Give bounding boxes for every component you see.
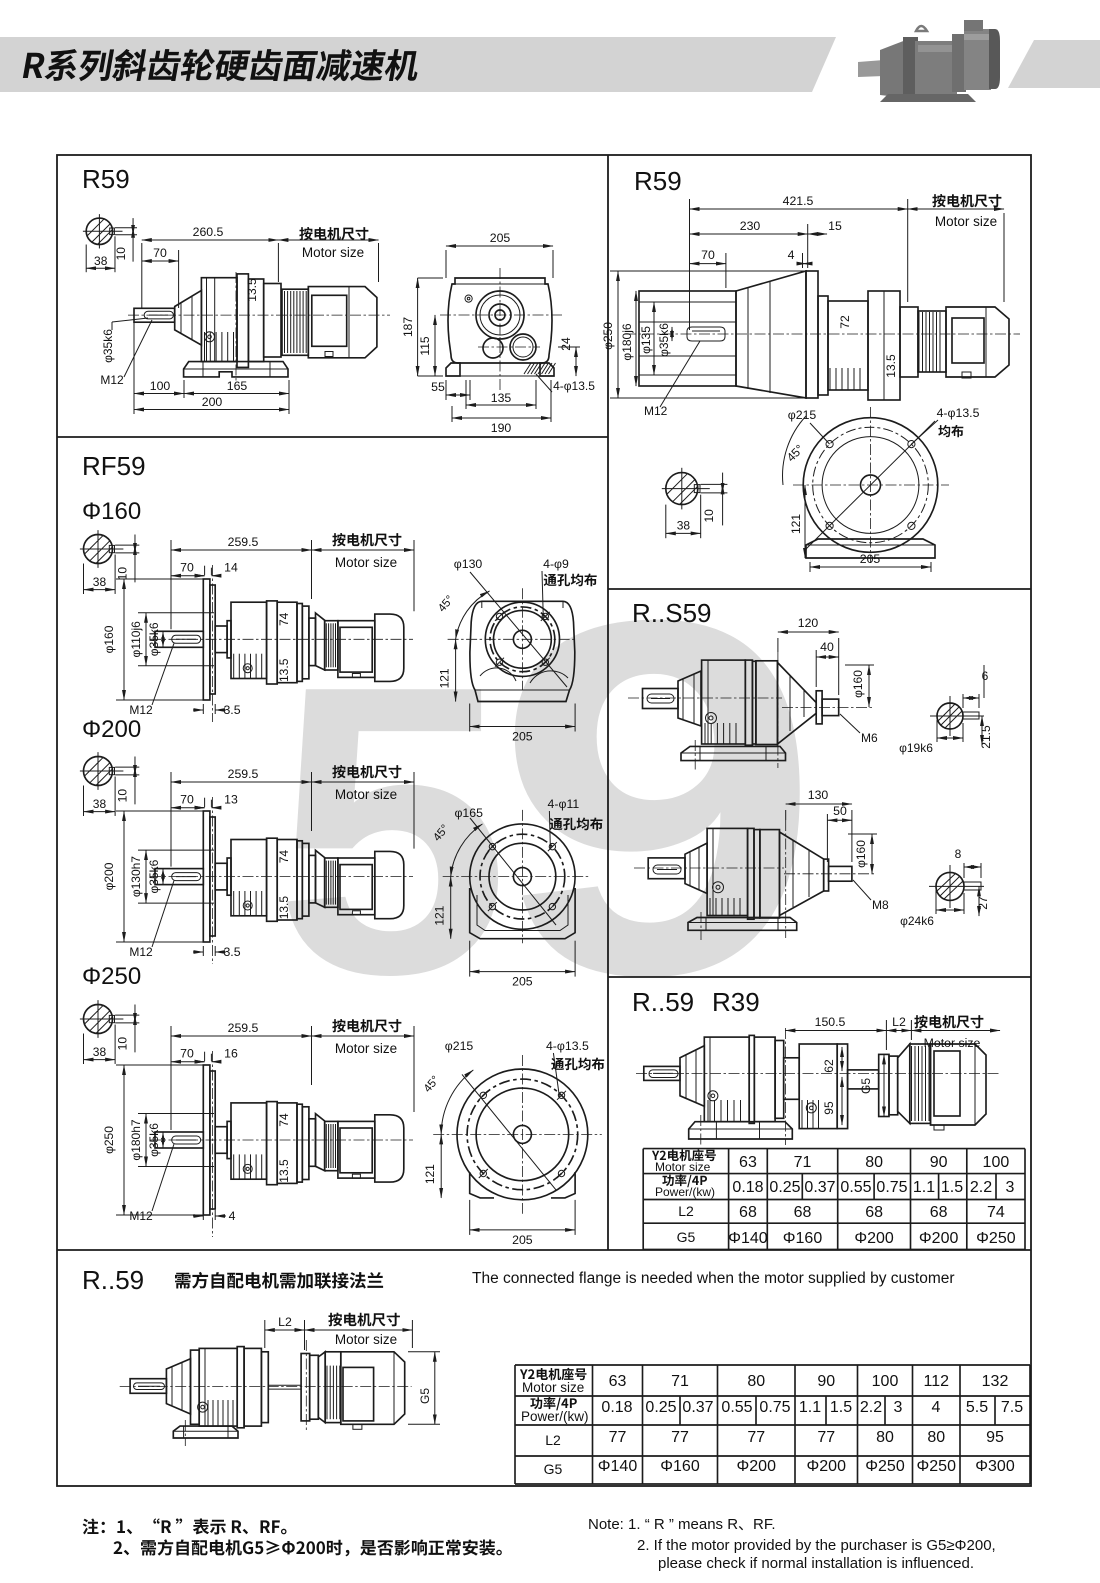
svg-text:71: 71 [671,1373,689,1390]
svg-text:95: 95 [822,1101,836,1115]
svg-text:φ130h7: φ130h7 [129,856,143,897]
svg-text:16: 16 [224,1047,238,1061]
svg-text:4: 4 [788,248,795,262]
svg-text:4-φ13.5: 4-φ13.5 [937,406,980,420]
svg-text:77: 77 [609,1429,627,1446]
svg-text:13.5: 13.5 [277,658,291,682]
svg-text:0.37: 0.37 [682,1399,713,1416]
svg-text:M12: M12 [644,404,668,418]
svg-text:0.25: 0.25 [769,1179,800,1196]
svg-text:38: 38 [93,1045,107,1059]
svg-text:2. If the motor provided by th: 2. If the motor provided by the purchase… [637,1537,996,1554]
svg-text:Motor size: Motor size [335,555,397,570]
svg-text:Motor size: Motor size [335,1041,397,1056]
svg-text:Φ300: Φ300 [975,1458,1015,1475]
svg-text:68: 68 [739,1204,757,1221]
svg-text:4: 4 [932,1399,941,1416]
svg-text:R59: R59 [82,164,130,194]
svg-text:Φ200: Φ200 [807,1458,847,1475]
svg-text:13.5: 13.5 [884,354,898,378]
svg-text:0.55: 0.55 [840,1179,871,1196]
svg-text:Φ200: Φ200 [854,1230,894,1247]
svg-text:Power/(kw): Power/(kw) [521,1409,589,1424]
svg-text:4-φ13.5: 4-φ13.5 [546,1039,589,1053]
svg-text:121: 121 [438,668,452,688]
svg-text:R..S59: R..S59 [632,598,712,628]
svg-text:Φ250: Φ250 [917,1458,957,1475]
svg-text:Power/(kw): Power/(kw) [655,1185,715,1199]
svg-text:100: 100 [872,1373,899,1390]
svg-text:φ160: φ160 [851,670,865,698]
svg-text:RF59: RF59 [82,451,146,481]
svg-text:M12: M12 [129,945,153,959]
svg-text:0.37: 0.37 [804,1179,835,1196]
svg-text:Φ140: Φ140 [598,1458,638,1475]
svg-text:77: 77 [817,1429,835,1446]
svg-text:63: 63 [739,1154,757,1171]
svg-text:Φ200: Φ200 [919,1230,959,1247]
svg-text:27: 27 [976,896,990,910]
svg-text:259.5: 259.5 [228,535,259,549]
svg-text:68: 68 [794,1204,812,1221]
svg-text:Φ250: Φ250 [976,1230,1016,1247]
svg-text:421.5: 421.5 [783,194,814,208]
svg-text:14: 14 [224,561,238,575]
svg-text:φ180h7: φ180h7 [129,1119,143,1160]
svg-text:1.5: 1.5 [830,1399,852,1416]
svg-text:120: 120 [798,616,819,630]
svg-text:φ35k6: φ35k6 [147,1123,161,1157]
svg-text:φ35k6: φ35k6 [657,323,671,357]
svg-text:132: 132 [982,1373,1009,1390]
svg-text:5.5: 5.5 [966,1399,988,1416]
svg-text:38: 38 [93,797,107,811]
svg-text:8: 8 [955,847,962,861]
svg-text:80: 80 [865,1154,883,1171]
svg-text:72: 72 [838,315,852,329]
svg-text:90: 90 [817,1373,835,1390]
svg-text:63: 63 [609,1373,627,1390]
svg-text:74: 74 [987,1204,1005,1221]
svg-text:50: 50 [833,804,847,818]
svg-text:0.55: 0.55 [721,1399,752,1416]
svg-text:95: 95 [986,1429,1004,1446]
svg-text:7.5: 7.5 [1001,1399,1023,1416]
svg-text:4-φ9: 4-φ9 [543,557,569,571]
svg-text:L2: L2 [678,1203,694,1219]
svg-text:0.18: 0.18 [601,1399,632,1416]
svg-text:φ110j6: φ110j6 [129,621,143,658]
svg-text:121: 121 [423,1164,437,1184]
svg-text:please check if normal install: please check if normal installation is i… [658,1555,974,1572]
svg-text:φ130: φ130 [454,557,483,571]
svg-text:70: 70 [180,561,194,575]
svg-text:2.2: 2.2 [860,1399,882,1416]
svg-text:R..59: R..59 [632,987,694,1017]
svg-text:3: 3 [894,1399,903,1416]
svg-text:165: 165 [227,379,248,393]
svg-text:205: 205 [490,231,511,245]
svg-text:200: 200 [202,395,223,409]
svg-text:135: 135 [491,391,512,405]
svg-text:φ35k6: φ35k6 [147,859,161,893]
svg-text:3.5: 3.5 [223,703,240,717]
svg-text:259.5: 259.5 [228,767,259,781]
svg-text:Φ200: Φ200 [82,716,141,743]
svg-text:10: 10 [115,567,129,581]
svg-text:L2: L2 [892,1015,906,1029]
svg-text:74: 74 [277,850,291,864]
svg-text:100: 100 [983,1154,1010,1171]
svg-text:70: 70 [153,246,167,260]
svg-text:205: 205 [512,1233,533,1247]
svg-text:Motor size: Motor size [924,1036,981,1050]
svg-text:φ35k6: φ35k6 [101,329,115,363]
svg-text:121: 121 [433,905,447,925]
svg-text:80: 80 [927,1429,945,1446]
svg-text:70: 70 [701,248,715,262]
svg-text:M6: M6 [861,731,878,745]
svg-text:205: 205 [512,975,533,989]
svg-text:R39: R39 [712,987,760,1017]
svg-text:205: 205 [512,730,533,744]
svg-text:10: 10 [702,509,716,523]
svg-text:M12: M12 [129,1209,153,1223]
svg-text:55: 55 [431,380,445,394]
svg-text:L2: L2 [545,1432,561,1448]
svg-text:M12: M12 [100,373,124,387]
svg-text:Φ200: Φ200 [737,1458,777,1475]
svg-text:38: 38 [94,254,108,268]
svg-text:80: 80 [876,1429,894,1446]
svg-text:Motor size: Motor size [335,787,397,802]
svg-text:68: 68 [865,1204,883,1221]
svg-text:Φ160: Φ160 [82,498,141,525]
svg-text:259.5: 259.5 [228,1021,259,1035]
svg-text:38: 38 [93,575,107,589]
svg-text:Φ160: Φ160 [783,1230,823,1247]
svg-text:115: 115 [418,336,432,355]
svg-text:13.5: 13.5 [277,896,291,920]
svg-text:260.5: 260.5 [193,225,224,239]
svg-text:R59: R59 [634,166,682,196]
svg-text:φ35k6: φ35k6 [147,622,161,656]
svg-text:74: 74 [277,612,291,626]
svg-text:38: 38 [677,518,691,532]
svg-text:G5: G5 [544,1461,563,1477]
svg-text:φ250: φ250 [601,322,615,350]
svg-text:15: 15 [828,219,842,233]
svg-text:Motor size: Motor size [935,214,997,229]
svg-text:150.5: 150.5 [815,1015,846,1029]
svg-text:71: 71 [794,1154,812,1171]
svg-text:70: 70 [180,1047,194,1061]
svg-text:10: 10 [114,247,128,261]
svg-text:230: 230 [740,219,761,233]
svg-text:0.75: 0.75 [876,1179,907,1196]
svg-text:1.1: 1.1 [913,1179,935,1196]
svg-text:L2: L2 [278,1315,292,1329]
svg-text:φ165: φ165 [454,806,483,820]
svg-text:121: 121 [789,514,803,534]
svg-text:70: 70 [180,793,194,807]
svg-text:13: 13 [224,793,238,807]
svg-text:4-φ11: 4-φ11 [548,797,580,811]
svg-text:13.5: 13.5 [277,1159,291,1183]
svg-text:4: 4 [229,1209,236,1223]
svg-text:φ160: φ160 [102,625,116,653]
svg-text:2.2: 2.2 [970,1179,992,1196]
svg-text:62: 62 [822,1059,836,1073]
svg-text:Φ160: Φ160 [660,1458,700,1475]
svg-text:10: 10 [115,789,129,803]
svg-text:φ160: φ160 [854,840,868,868]
svg-text:100: 100 [150,379,171,393]
svg-text:φ180j6: φ180j6 [620,323,634,360]
svg-text:10: 10 [115,1037,129,1051]
svg-text:M12: M12 [129,703,153,717]
svg-text:Motor size: Motor size [302,245,364,260]
svg-text:Motor size: Motor size [335,1332,397,1347]
svg-text:205: 205 [860,552,881,566]
svg-text:13.5: 13.5 [245,278,259,302]
svg-text:Motor size: Motor size [655,1160,711,1174]
svg-text:21.5: 21.5 [979,725,993,749]
svg-text:G5: G5 [677,1229,696,1245]
svg-text:G5: G5 [859,1078,873,1094]
svg-text:φ250: φ250 [102,1126,116,1154]
svg-text:68: 68 [930,1204,948,1221]
svg-text:0.25: 0.25 [645,1399,676,1416]
svg-text:187: 187 [401,317,415,337]
svg-text:90: 90 [930,1154,948,1171]
svg-text:77: 77 [747,1429,765,1446]
svg-text:The connected flange is needed: The connected flange is needed when the … [472,1270,955,1287]
svg-text:190: 190 [491,421,512,435]
svg-text:φ200: φ200 [102,862,116,890]
svg-text:4-φ13.5: 4-φ13.5 [553,379,595,393]
svg-text:1.5: 1.5 [941,1179,963,1196]
svg-text:112: 112 [923,1373,949,1390]
svg-text:Motor size: Motor size [522,1380,584,1395]
svg-text:0.18: 0.18 [732,1179,763,1196]
svg-text:0.75: 0.75 [759,1399,790,1416]
svg-text:74: 74 [277,1113,291,1127]
svg-text:77: 77 [671,1429,689,1446]
svg-text:3.5: 3.5 [223,945,240,959]
svg-text:R..59: R..59 [82,1265,144,1295]
svg-text:Φ140: Φ140 [728,1230,768,1247]
svg-text:Note: 1. “ R ” means R、RF.: Note: 1. “ R ” means R、RF. [588,1516,776,1533]
svg-text:φ215: φ215 [445,1039,474,1053]
svg-text:Φ250: Φ250 [82,963,141,990]
svg-text:6: 6 [982,669,989,683]
svg-text:80: 80 [747,1373,765,1390]
svg-text:130: 130 [808,788,829,802]
svg-text:φ19k6: φ19k6 [899,741,933,755]
svg-text:φ135: φ135 [639,326,653,354]
svg-text:3: 3 [1006,1179,1015,1196]
svg-text:M8: M8 [872,898,889,912]
svg-text:Φ250: Φ250 [865,1458,905,1475]
svg-text:1.1: 1.1 [799,1399,821,1416]
svg-text:40: 40 [820,640,834,654]
svg-text:φ24k6: φ24k6 [900,914,934,928]
svg-text:24: 24 [559,337,573,351]
svg-text:G5: G5 [418,1388,432,1404]
